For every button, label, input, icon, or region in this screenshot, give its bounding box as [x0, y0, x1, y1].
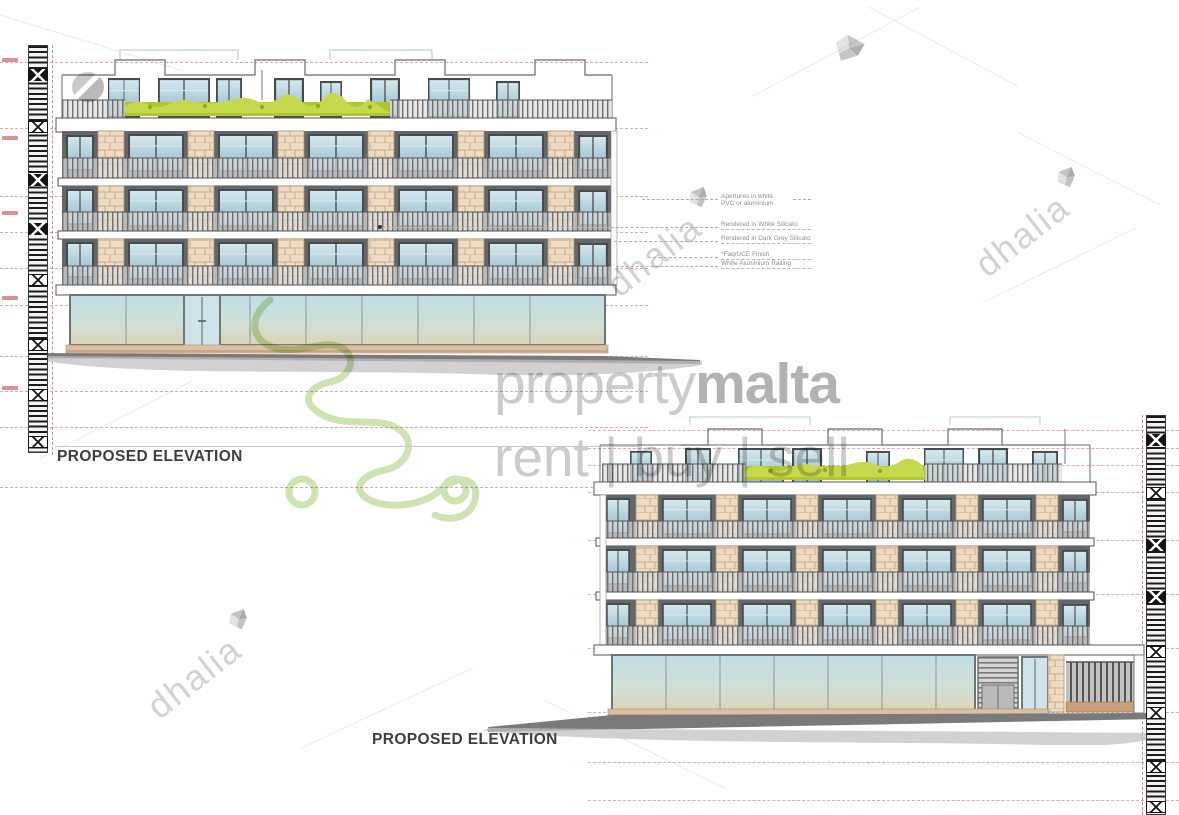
diagonal-line: [1018, 132, 1161, 206]
level-label-mark: [2, 386, 18, 390]
watermark-brand-bold: malta: [695, 356, 839, 413]
elevation-1-drawing: [0, 45, 710, 380]
watermark-agency: dhalia: [139, 610, 273, 727]
staff-target: [28, 339, 48, 351]
staff-target: [1146, 591, 1166, 603]
watermark-agency-text: dhalia: [139, 628, 250, 728]
staff-target: [28, 223, 48, 235]
survey-staff-right: [1146, 415, 1166, 815]
staff-target: [28, 69, 48, 81]
staff-target: [1146, 434, 1166, 446]
leader-line: [382, 227, 718, 228]
title-separator-line: [55, 446, 640, 447]
staff-target: [1146, 761, 1166, 773]
staff-target: [1146, 801, 1166, 813]
annotation-grey-render: Rendered in Dark Grey Silicato: [721, 235, 811, 244]
leader-line: [642, 199, 718, 200]
annotation-railing: White Aluminium Railing: [721, 260, 811, 269]
gem-icon: [1051, 162, 1083, 194]
staff-target: [28, 389, 48, 401]
survey-staff-left: [28, 45, 48, 453]
annotation-text: Rendered in White Silicato: [721, 221, 798, 228]
gem-icon: [223, 604, 255, 636]
annotation-facade-finish: *Faq/UCE Finish: [721, 251, 811, 260]
staff-target: [28, 121, 48, 133]
elevation-2-drawing: [480, 415, 1179, 745]
annotation-text: Rendered in Dark Grey Silicato: [721, 235, 811, 242]
staff-target: [1146, 539, 1166, 551]
annotation-text: PVC or aluminium: [721, 200, 773, 207]
diagonal-line: [983, 227, 1136, 302]
architectural-drawing-sheet: propertymalta rent | buy | sell dhalia d…: [0, 0, 1179, 815]
staff-target: [28, 274, 48, 286]
annotation-text: Apertures in white: [721, 193, 773, 200]
diagonal-line: [868, 6, 1019, 87]
elevation-2-title: PROPOSED ELEVATION: [372, 731, 558, 749]
leader-line: [648, 257, 718, 258]
elevation-1-title: PROPOSED ELEVATION: [57, 448, 243, 466]
staff-target: [28, 174, 48, 186]
staff-target: [1146, 707, 1166, 719]
annotation-apertures: Apertures in white PVC or aluminium: [721, 193, 811, 207]
level-line: [0, 391, 648, 392]
staff-target: [28, 436, 48, 448]
staff-target: [1146, 487, 1166, 499]
watermark-agency-text: dhalia: [967, 186, 1078, 286]
leader-line: [616, 266, 718, 267]
leader-line: [614, 241, 718, 242]
watermark-agency: dhalia: [967, 168, 1101, 285]
annotation-white-render: Rendered in White Silicato: [721, 221, 811, 230]
level-line: [588, 800, 1179, 801]
staff-target: [1146, 646, 1166, 658]
annotation-text: *Faq/UCE Finish: [721, 251, 769, 258]
annotation-text: White Aluminium Railing: [721, 260, 791, 267]
level-line: [588, 762, 1179, 763]
